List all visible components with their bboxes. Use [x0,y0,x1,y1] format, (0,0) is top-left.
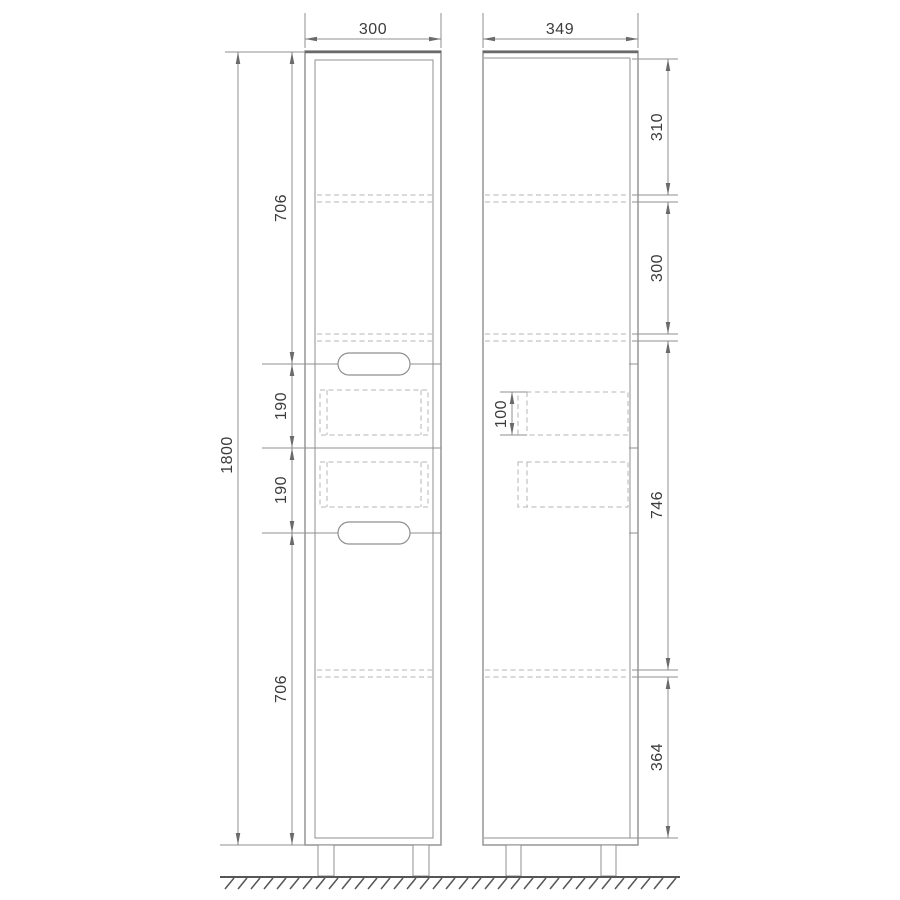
drawer-height-label: 100 [493,400,510,428]
side-depth-label: 349 [546,21,574,38]
upper-handle [338,353,410,375]
front-view [262,51,441,876]
side-cabinet-outline [483,51,638,845]
front-left-leg [318,845,334,876]
side-view [483,51,638,876]
side-back-leg [506,845,521,876]
lower-handle [338,522,410,544]
front-width-label: 300 [359,21,387,38]
side-extension-lines [632,59,678,838]
cabinet-drawing: 300 1800 706 190 190 706 [0,0,900,900]
side-front-leg [601,845,616,876]
side-section-3-label: 364 [649,743,666,771]
front-height-label: 1800 [219,436,236,474]
ground [220,877,680,889]
technical-drawing-canvas: 300 1800 706 190 190 706 [0,0,900,900]
front-section-0-label: 706 [273,194,290,222]
front-section-1-label: 190 [273,392,290,420]
side-section-2-label: 746 [649,491,666,519]
ground-hatch [225,878,676,889]
front-section-3-label: 706 [273,675,290,703]
side-section-0-label: 310 [649,113,666,141]
front-right-leg [413,845,429,876]
front-section-2-label: 190 [273,476,290,504]
side-section-1-label: 300 [649,254,666,282]
